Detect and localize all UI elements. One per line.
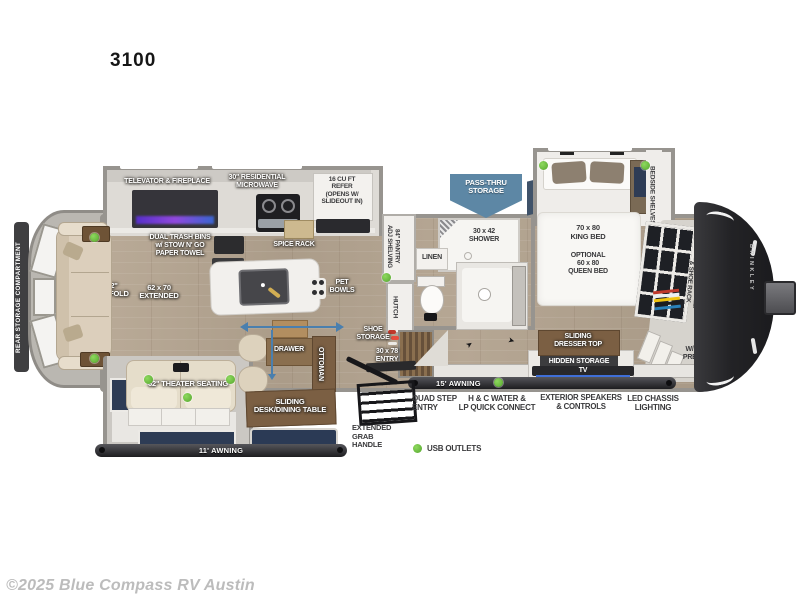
kitchen-island [209, 258, 321, 316]
toilet-bowl [420, 285, 444, 314]
slideout-roof-window [212, 164, 302, 169]
dual-trash-label: DUAL TRASH BINS w/ STOW N' GO PAPER TOWE… [142, 234, 218, 257]
sliding-desk-label: SLIDING DESK/DINING TABLE [246, 398, 334, 415]
shower-label: 30 x 42 SHOWER [456, 228, 512, 244]
pillow-icon [589, 161, 624, 184]
plan-title: 3100 [110, 50, 156, 72]
sliding-dresser-top-label: SLIDING DRESSER TOP [538, 333, 618, 349]
floorplan-canvas: 3100 REAR STORAGE COMPARTMENT TELEVATOR … [0, 0, 800, 600]
televator-fireplace-label: TELEVATOR & FIREPLACE [114, 178, 220, 186]
dinette-chair-icon [238, 334, 268, 362]
refrigerator-icon [316, 219, 370, 233]
rear-window-icon [33, 278, 56, 316]
queen-bed-option-label: OPTIONAL 60 x 80 QUEEN BED [547, 252, 629, 276]
front-cap [694, 202, 774, 392]
theater-footrest [128, 408, 230, 426]
king-bed-label: 70 x 80 KING BED [547, 224, 629, 241]
slide-dimension-line [271, 330, 273, 374]
sconce-icon [560, 152, 574, 155]
extended-grab-handle-label: EXTENDED GRAB HANDLE [352, 424, 412, 450]
exterior-speakers-label: EXTERIOR SPEAKERS & CONTROLS [540, 394, 622, 412]
theater-seating-label: 62" THEATER SEATING [144, 380, 232, 388]
tv-label: TV [572, 367, 594, 375]
usb-outlet-dot [90, 233, 99, 242]
rear-storage-compartment-label: REAR STORAGE COMPARTMENT [15, 226, 22, 368]
dinette-chair-icon [238, 366, 268, 394]
fireplace-tv-unit [132, 190, 218, 228]
spice-rack-label: SPICE RACK [266, 241, 322, 249]
usb-outlet-dot [183, 393, 192, 402]
trash-bins-icon [214, 236, 244, 254]
usb-outlet-dot [144, 375, 153, 384]
shoe-storage-label: SHOE STORAGE [350, 326, 396, 342]
usb-legend-dot [413, 444, 422, 453]
awning-15-bar: 15' AWNING [408, 377, 676, 389]
awning-15-label: 15' AWNING [436, 379, 481, 388]
usb-legend-label: USB OUTLETS [427, 444, 497, 453]
microwave-label: 30" RESIDENTIAL MICROWAVE [224, 174, 290, 190]
refer-label: 16 CU FT REFER (OPENS W/ SLIDEOUT IN) [313, 176, 371, 206]
slide-dimension-arrowhead [268, 374, 276, 380]
usb-outlet-dot [90, 354, 99, 363]
spice-rack-icon [284, 220, 314, 239]
hutch-label: HUTCH [391, 288, 399, 326]
slideout-roof-window [548, 146, 632, 151]
ottoman-label: OTTOMAN [316, 340, 324, 388]
bath-mat-icon [424, 313, 437, 321]
burner-icon [262, 199, 276, 213]
sink-icon [238, 268, 289, 306]
slide-dimension-arrow [240, 322, 344, 332]
sconce-icon [610, 152, 624, 155]
usb-outlet-dot [494, 378, 503, 387]
sofa-extended-label: 62 x 70 EXTENDED [136, 284, 182, 301]
usb-outlet-dot [539, 161, 548, 170]
quad-step-icon [357, 380, 418, 426]
vanity-mirror [512, 266, 526, 326]
shoe-icon [388, 342, 397, 345]
pass-thru-storage-label: PASS-THRU STORAGE [450, 179, 522, 196]
usb-outlet-dot [382, 273, 391, 282]
usb-outlet-dot [641, 161, 650, 170]
front-cap-brand: BRINKLEY [748, 244, 754, 354]
copyright: ©2025 Blue Compass RV Austin [6, 577, 255, 595]
fireplace-glow [136, 216, 214, 224]
hitch-pin-icon [764, 281, 796, 315]
awning-11-bar: 11' AWNING [95, 444, 347, 457]
shower-drain-icon [464, 252, 472, 260]
hidden-storage-label: HIDDEN STORAGE [540, 358, 618, 366]
slideout-roof-window [120, 164, 198, 169]
pet-bowls-label: PET BOWLS [326, 279, 358, 295]
console-icon [173, 363, 189, 372]
hc-water-lp-label: H & C WATER & LP QUICK CONNECT [456, 394, 538, 412]
vanity-sink-icon [478, 288, 491, 301]
pet-bowls-icon [310, 278, 326, 299]
pantry-label: 84" PANTRY ADJ SHELVING [386, 217, 400, 275]
burner-icon [281, 199, 295, 213]
pillow-icon [551, 161, 586, 184]
linen-label: LINEN [416, 254, 448, 262]
usb-outlet-dot [226, 375, 235, 384]
led-chassis-label: LED CHASSIS LIGHTING [626, 394, 680, 412]
bedroom-divider-wall [531, 218, 535, 330]
clothes-stack-icon [653, 289, 681, 313]
awning-11-label: 11' AWNING [95, 446, 347, 455]
